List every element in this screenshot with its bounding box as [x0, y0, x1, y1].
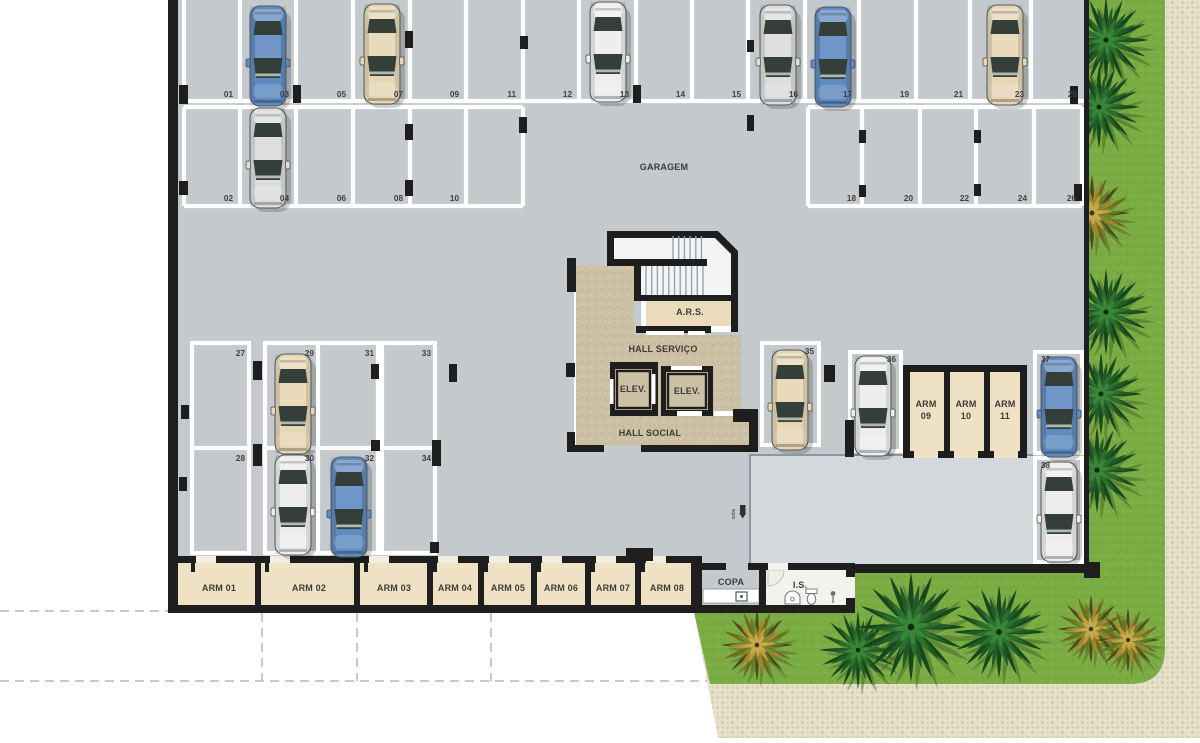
svg-text:ARM 05: ARM 05 [491, 583, 525, 593]
svg-text:ARM 02: ARM 02 [292, 583, 326, 593]
svg-text:21: 21 [954, 90, 964, 99]
svg-text:31: 31 [365, 349, 375, 358]
svg-text:37: 37 [1041, 355, 1051, 364]
svg-text:HALL SOCIAL: HALL SOCIAL [619, 428, 682, 438]
svg-text:27: 27 [236, 349, 246, 358]
svg-text:17: 17 [843, 90, 853, 99]
svg-text:A.R.S.: A.R.S. [676, 307, 704, 317]
svg-text:30: 30 [305, 454, 315, 463]
svg-text:35: 35 [805, 347, 815, 356]
svg-text:20: 20 [904, 194, 914, 203]
svg-text:ARM 03: ARM 03 [377, 583, 411, 593]
svg-text:ARM 07: ARM 07 [596, 583, 630, 593]
svg-text:15: 15 [732, 90, 742, 99]
svg-text:ARM 08: ARM 08 [650, 583, 684, 593]
svg-text:01: 01 [224, 90, 234, 99]
svg-text:13: 13 [620, 90, 630, 99]
svg-text:36: 36 [887, 355, 897, 364]
svg-text:ARM: ARM [915, 399, 936, 409]
svg-text:10: 10 [961, 411, 971, 421]
svg-text:33: 33 [422, 349, 432, 358]
svg-text:09: 09 [921, 411, 931, 421]
svg-text:19: 19 [900, 90, 910, 99]
svg-text:23: 23 [1015, 90, 1025, 99]
svg-text:05: 05 [337, 90, 347, 99]
svg-text:02: 02 [224, 194, 234, 203]
svg-text:10: 10 [450, 194, 460, 203]
svg-text:16: 16 [789, 90, 799, 99]
svg-text:38: 38 [1041, 461, 1051, 470]
svg-text:25: 25 [1068, 90, 1078, 99]
svg-text:ARM 01: ARM 01 [202, 583, 236, 593]
svg-text:11: 11 [1000, 411, 1010, 421]
svg-text:34: 34 [422, 454, 432, 463]
svg-text:22: 22 [960, 194, 970, 203]
svg-text:07: 07 [394, 90, 404, 99]
svg-text:GARAGEM: GARAGEM [640, 162, 688, 172]
svg-text:04: 04 [280, 194, 290, 203]
svg-text:18: 18 [847, 194, 857, 203]
svg-text:ARM: ARM [994, 399, 1015, 409]
svg-text:I.S.: I.S. [793, 580, 807, 590]
svg-text:ELEV.: ELEV. [674, 386, 700, 396]
svg-text:sobe: sobe [731, 508, 737, 519]
svg-text:ARM 04: ARM 04 [438, 583, 472, 593]
svg-text:29: 29 [305, 349, 315, 358]
svg-text:11: 11 [507, 90, 516, 99]
svg-text:ARM 06: ARM 06 [544, 583, 578, 593]
svg-text:HALL SERVIÇO: HALL SERVIÇO [628, 344, 697, 354]
svg-text:24: 24 [1018, 194, 1028, 203]
svg-text:14: 14 [676, 90, 686, 99]
svg-text:ARM: ARM [955, 399, 976, 409]
svg-text:COPA: COPA [718, 577, 744, 587]
svg-text:ELEV.: ELEV. [620, 384, 646, 394]
svg-text:28: 28 [236, 454, 246, 463]
svg-text:08: 08 [394, 194, 404, 203]
svg-text:09: 09 [450, 90, 460, 99]
svg-text:26: 26 [1067, 194, 1077, 203]
svg-text:06: 06 [337, 194, 347, 203]
svg-text:12: 12 [563, 90, 573, 99]
svg-text:32: 32 [365, 454, 375, 463]
svg-text:03: 03 [280, 90, 290, 99]
